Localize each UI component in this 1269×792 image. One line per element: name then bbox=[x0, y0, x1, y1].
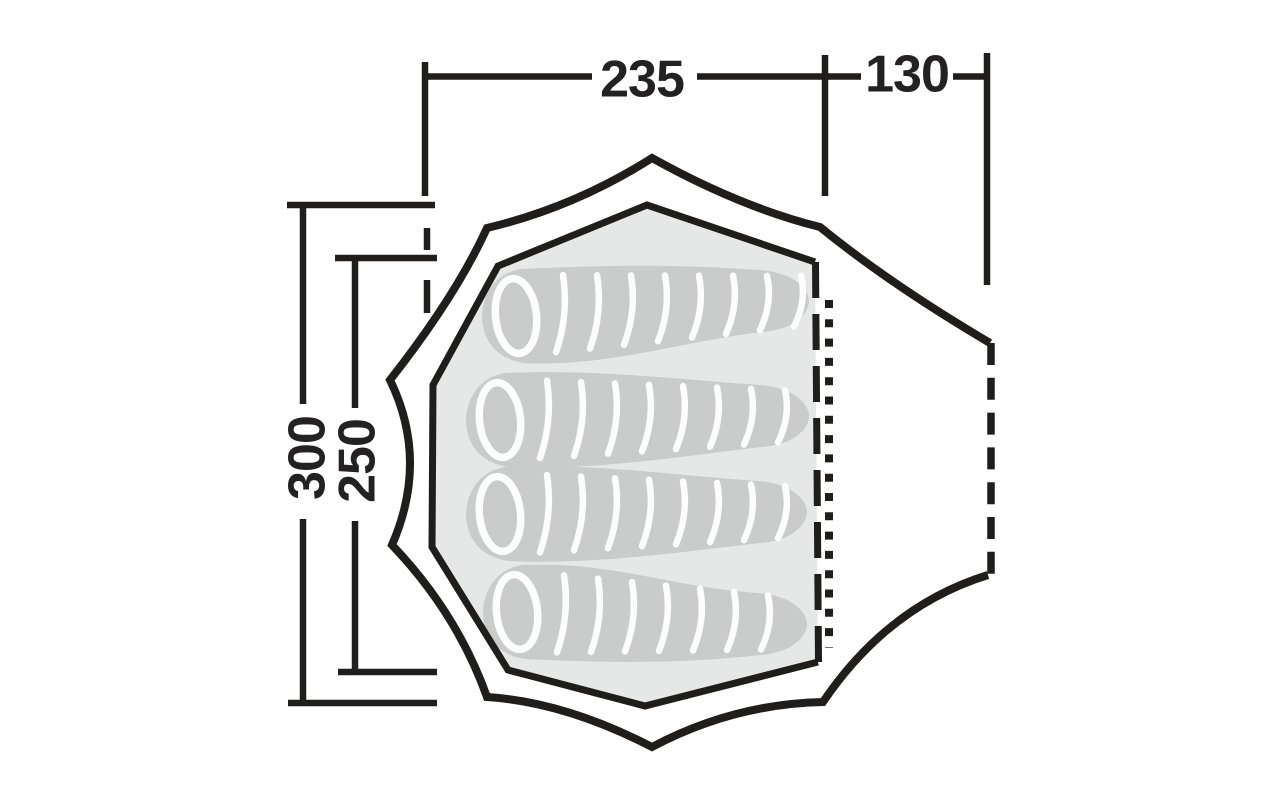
dim-label-inner-length: 250 bbox=[329, 419, 387, 503]
dimension-250-group: 250 bbox=[329, 258, 437, 672]
dim-label-inner-width: 235 bbox=[600, 51, 684, 109]
dim-label-porch-width: 130 bbox=[865, 46, 949, 104]
tent-floorplan-diagram: 235 130 300 250 bbox=[0, 0, 1269, 792]
floorplan-canvas: 235 130 300 250 bbox=[0, 0, 1269, 792]
